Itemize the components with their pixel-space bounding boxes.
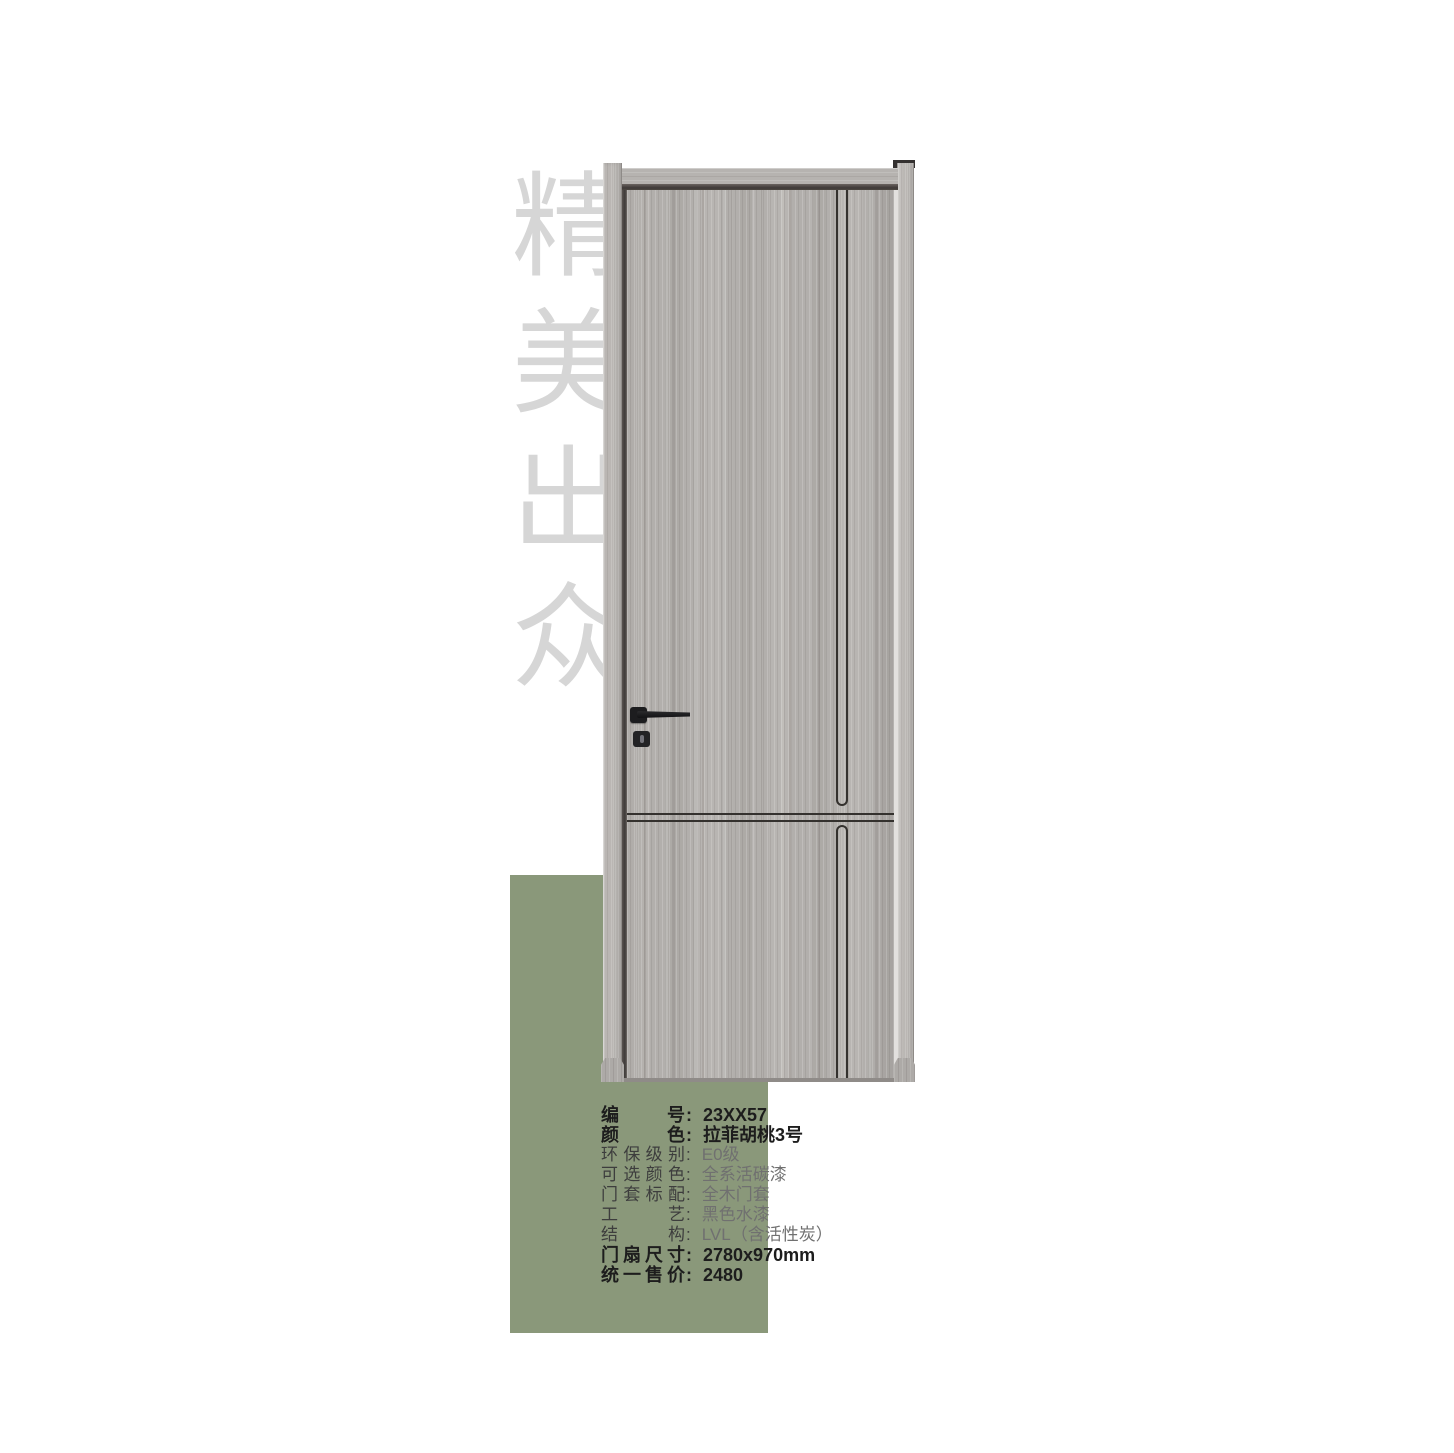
spec-label: 门扇尺寸: [601, 1245, 685, 1265]
spec-colon: :: [686, 1165, 691, 1185]
spec-label: 环保级别: [601, 1145, 685, 1165]
spec-colon: :: [686, 1185, 691, 1205]
door-frame-right-jamb: [897, 163, 914, 1082]
spec-value: 2780x970mm: [703, 1245, 815, 1265]
spec-value: 拉菲胡桃3号: [703, 1125, 803, 1145]
spec-label: 颜色: [601, 1125, 685, 1145]
spec-label: 统一售价: [601, 1265, 685, 1285]
door-latch-gap: [894, 190, 898, 1078]
spec-label: 门套标配: [601, 1185, 685, 1205]
spec-colon: :: [686, 1105, 692, 1125]
spec-value: 全系活碳漆: [702, 1165, 787, 1185]
spec-label: 工艺: [601, 1205, 685, 1225]
spec-label: 结构: [601, 1225, 685, 1245]
spec-value: 全木门套: [702, 1185, 770, 1205]
door-lock-escutcheon: [633, 731, 650, 747]
door-groove-horizontal: [627, 813, 894, 822]
spec-row-structure: 结构:LVL（含活性炭）: [601, 1225, 833, 1245]
spec-row-optional-colors: 可选颜色:全系活碳漆: [601, 1165, 833, 1185]
spec-colon: :: [686, 1205, 691, 1225]
product-page: 精美出众 编号:23XX57 颜色:拉菲胡桃3号: [0, 0, 1454, 1453]
spec-value: 黑色水漆: [702, 1205, 770, 1225]
door-groove-vertical-bottom: [836, 825, 848, 1078]
spec-colon: :: [686, 1145, 691, 1165]
door-frame-left-plinth: [601, 1058, 624, 1082]
spec-colon: :: [686, 1225, 691, 1245]
spec-row-eco-grade: 环保级别:E0级: [601, 1145, 833, 1165]
spec-colon: :: [686, 1245, 692, 1265]
door-frame-left-jamb: [603, 163, 622, 1082]
spec-colon: :: [686, 1125, 692, 1145]
spec-row-price: 统一售价:2480: [601, 1265, 833, 1285]
spec-list: 编号:23XX57 颜色:拉菲胡桃3号 环保级别:E0级 可选颜色:全系活碳漆 …: [601, 1105, 833, 1285]
door-groove-vertical-top: [836, 190, 848, 806]
spec-row-frame-standard: 门套标配:全木门套: [601, 1185, 833, 1205]
spec-row-code: 编号:23XX57: [601, 1105, 833, 1125]
spec-value: 23XX57: [703, 1105, 767, 1125]
spec-row-craft: 工艺:黑色水漆: [601, 1205, 833, 1225]
door-product-image: [601, 160, 915, 1082]
door-leaf: [627, 190, 894, 1078]
spec-value: E0级: [702, 1145, 740, 1165]
lever-handle-icon: [637, 711, 690, 718]
hero-vertical-title: 精美出众: [500, 166, 614, 714]
spec-label: 编号: [601, 1105, 685, 1125]
keyhole-icon: [640, 735, 644, 743]
spec-label: 可选颜色: [601, 1165, 685, 1185]
spec-value: LVL（含活性炭）: [702, 1225, 833, 1245]
spec-colon: :: [686, 1265, 692, 1285]
spec-row-color: 颜色:拉菲胡桃3号: [601, 1125, 833, 1145]
door-bottom-shadow: [622, 1078, 898, 1082]
door-frame-right-plinth: [894, 1058, 915, 1082]
spec-row-leaf-size: 门扇尺寸:2780x970mm: [601, 1245, 833, 1265]
spec-value: 2480: [703, 1265, 743, 1285]
